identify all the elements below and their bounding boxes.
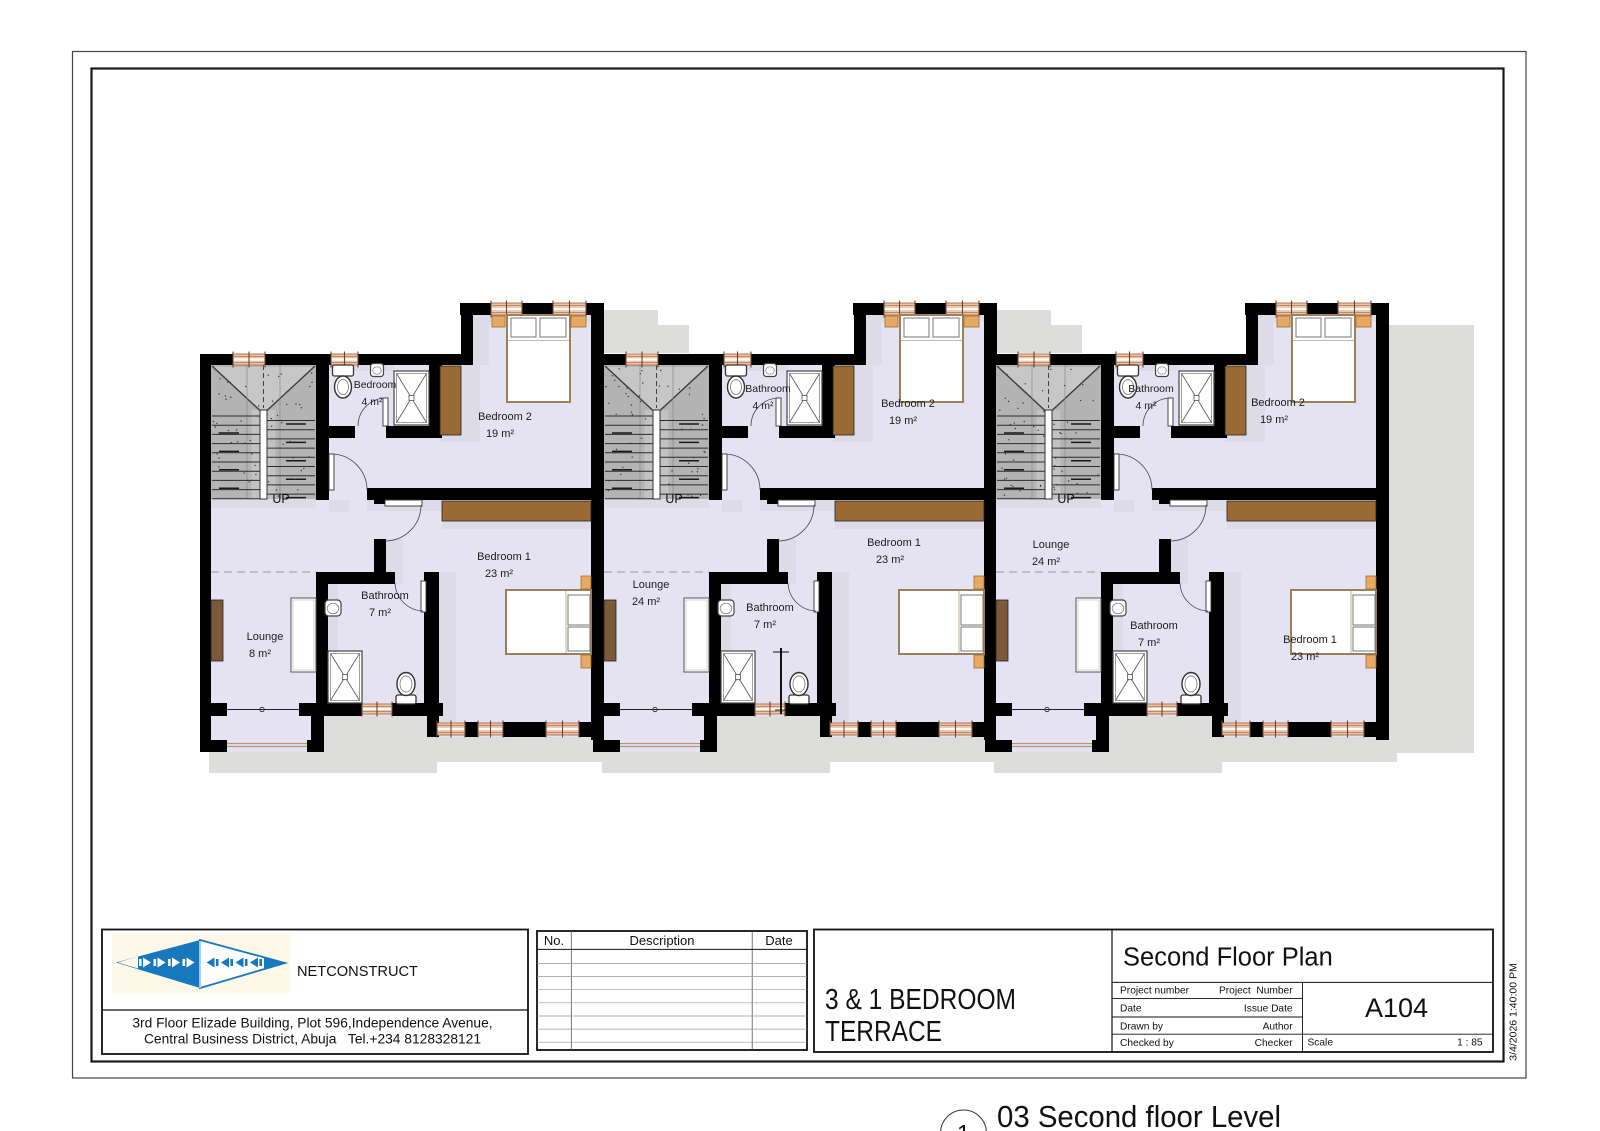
svg-text:Bedroom 1: Bedroom 1 <box>477 551 531 563</box>
svg-text:A104: A104 <box>1365 993 1428 1023</box>
svg-text:Bedroom 1: Bedroom 1 <box>1283 634 1337 646</box>
svg-text:7 m²: 7 m² <box>369 607 391 619</box>
svg-text:23 m²: 23 m² <box>485 568 513 580</box>
svg-text:Project Number: Project Number <box>1219 986 1293 997</box>
svg-text:Bathroom: Bathroom <box>1128 383 1174 395</box>
svg-text:Bathroom: Bathroom <box>746 602 794 614</box>
svg-text:NETCONSTRUCT: NETCONSTRUCT <box>297 963 418 980</box>
svg-text:Central Business District, Abu: Central Business District, Abuja Tel.+23… <box>144 1032 481 1047</box>
svg-text:Bathroom: Bathroom <box>361 590 409 602</box>
svg-text:Project number: Project number <box>1120 986 1190 997</box>
svg-text:Scale: Scale <box>1308 1038 1334 1049</box>
svg-text:7 m²: 7 m² <box>754 619 776 631</box>
svg-text:Lounge: Lounge <box>1033 539 1070 551</box>
svg-text:7 m²: 7 m² <box>1138 637 1160 649</box>
svg-text:UP: UP <box>665 492 682 506</box>
svg-text:Bedroom 2: Bedroom 2 <box>881 398 935 410</box>
svg-text:19 m²: 19 m² <box>486 428 514 440</box>
svg-text:Second Floor Plan: Second Floor Plan <box>1123 944 1333 972</box>
svg-text:Checker: Checker <box>1255 1038 1294 1049</box>
svg-text:Lounge: Lounge <box>247 631 284 643</box>
svg-text:Bedroom 2: Bedroom 2 <box>1251 397 1305 409</box>
svg-text:3/4/2026 1:40:00 PM: 3/4/2026 1:40:00 PM <box>1508 963 1520 1061</box>
svg-text:19 m²: 19 m² <box>889 415 917 427</box>
svg-text:4 m²: 4 m² <box>362 396 384 408</box>
svg-text:Bedroom 1: Bedroom 1 <box>867 537 921 549</box>
svg-text:Bedroom: Bedroom <box>354 379 397 391</box>
svg-text:24 m²: 24 m² <box>1032 556 1060 568</box>
svg-text:TERRACE: TERRACE <box>825 1016 942 1048</box>
svg-text:8 m²: 8 m² <box>249 648 271 660</box>
svg-text:4 m²: 4 m² <box>753 400 775 412</box>
svg-text:Bathroom: Bathroom <box>745 383 791 395</box>
svg-text:No.: No. <box>544 933 564 948</box>
svg-text:19 m²: 19 m² <box>1260 414 1288 426</box>
svg-text:23 m²: 23 m² <box>1291 651 1319 663</box>
svg-text:UP: UP <box>272 492 289 506</box>
svg-text:Issue Date: Issue Date <box>1244 1004 1293 1015</box>
svg-text:4 m²: 4 m² <box>1136 400 1158 412</box>
svg-text:Lounge: Lounge <box>633 579 670 591</box>
svg-text:3rd Floor Elizade Building, Pl: 3rd Floor Elizade Building, Plot 596,Ind… <box>132 1016 492 1031</box>
svg-text:Author: Author <box>1263 1022 1294 1033</box>
svg-text:UP: UP <box>1057 492 1074 506</box>
svg-text:Date: Date <box>1120 1004 1142 1015</box>
svg-text:Date: Date <box>765 933 792 948</box>
svg-text:Bathroom: Bathroom <box>1130 620 1178 632</box>
svg-text:1 : 85: 1 : 85 <box>1457 1038 1483 1049</box>
svg-text:24 m²: 24 m² <box>632 596 660 608</box>
svg-text:23 m²: 23 m² <box>876 554 904 566</box>
svg-text:3 & 1 BEDROOM: 3 & 1 BEDROOM <box>825 984 1016 1016</box>
svg-text:Drawn by: Drawn by <box>1120 1022 1164 1033</box>
svg-text:Checked by: Checked by <box>1120 1038 1175 1049</box>
svg-text:1: 1 <box>957 1121 970 1131</box>
svg-text:Description: Description <box>629 933 694 948</box>
svg-text:03 Second floor Level: 03 Second floor Level <box>997 1099 1281 1131</box>
svg-text:Bedroom 2: Bedroom 2 <box>478 411 532 423</box>
